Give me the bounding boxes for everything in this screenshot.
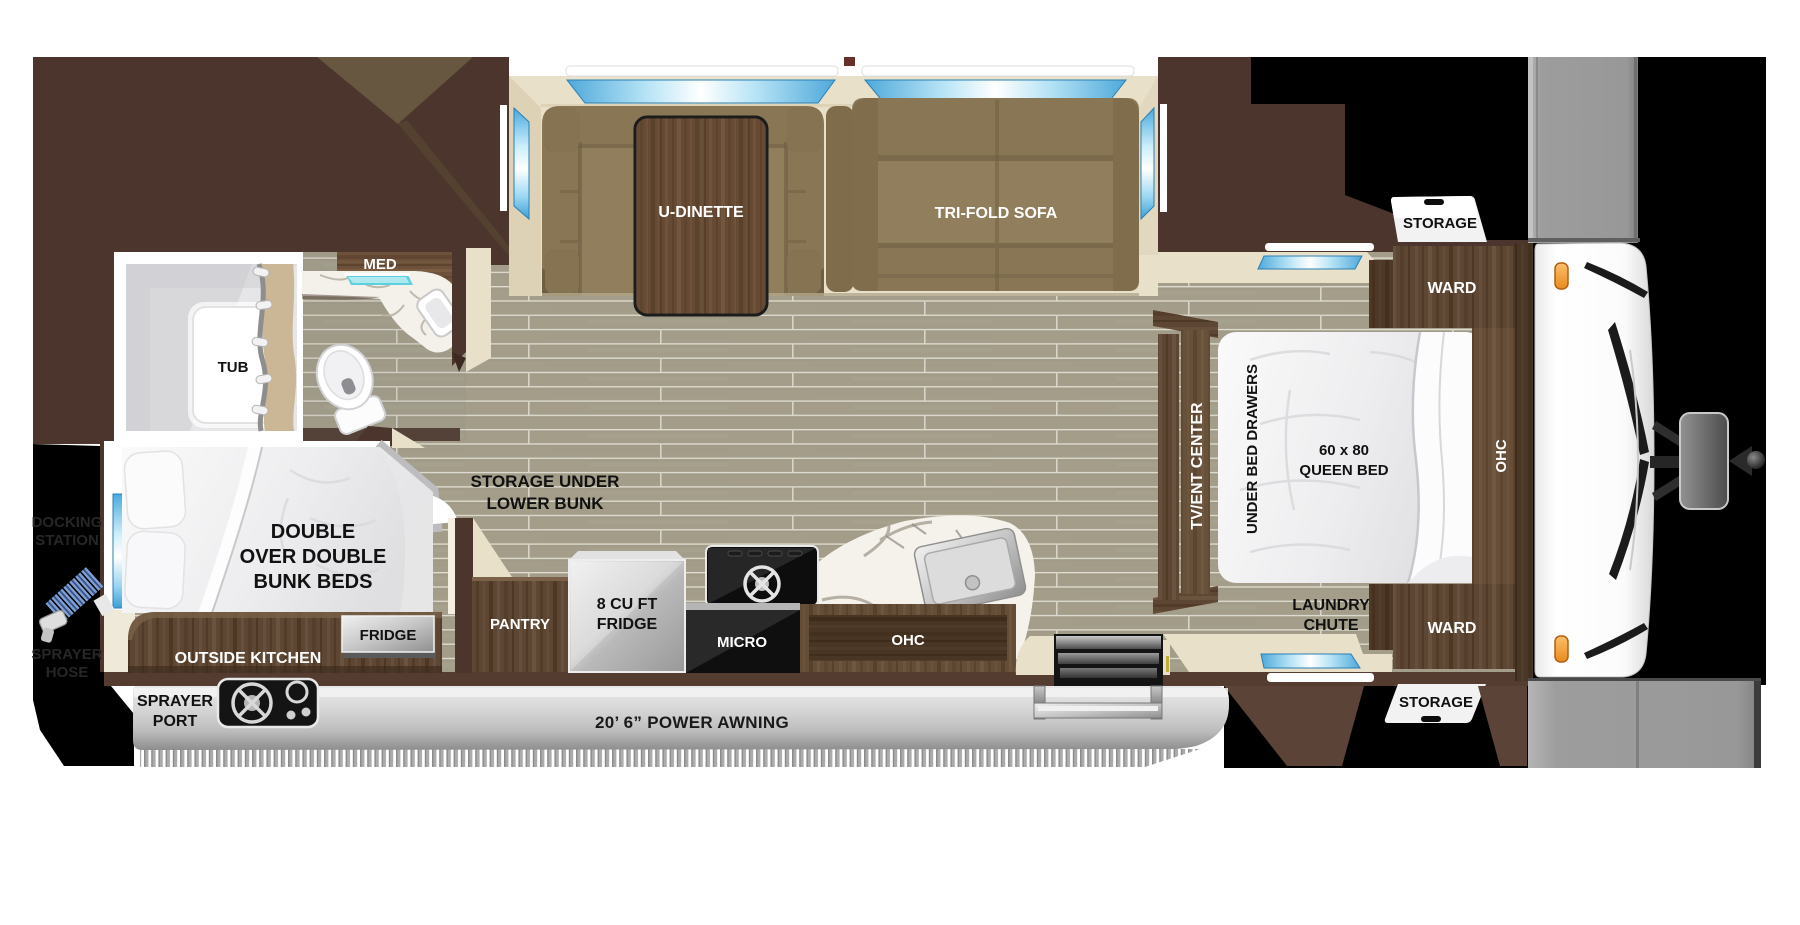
- svg-text:DOUBLE: DOUBLE: [271, 521, 355, 543]
- svg-text:PORT: PORT: [153, 713, 198, 730]
- svg-text:STORAGE UNDER: STORAGE UNDER: [471, 472, 620, 491]
- svg-text:8 CU FT: 8 CU FT: [597, 596, 658, 613]
- svg-text:OUTSIDE KITCHEN: OUTSIDE KITCHEN: [175, 650, 322, 667]
- svg-text:OVER DOUBLE: OVER DOUBLE: [240, 546, 387, 568]
- svg-text:FRIDGE: FRIDGE: [597, 616, 658, 633]
- svg-text:WARD: WARD: [1428, 280, 1477, 297]
- svg-text:OHC: OHC: [1493, 439, 1510, 473]
- svg-text:U-DINETTE: U-DINETTE: [658, 204, 744, 221]
- svg-text:LAUNDRY: LAUNDRY: [1292, 597, 1370, 614]
- svg-text:WARD: WARD: [1428, 620, 1477, 637]
- svg-text:HOSE: HOSE: [46, 664, 89, 681]
- svg-text:LOWER BUNK: LOWER BUNK: [486, 494, 604, 513]
- svg-text:MICRO: MICRO: [717, 634, 767, 651]
- svg-text:BUNK BEDS: BUNK BEDS: [254, 571, 373, 593]
- svg-text:STATION: STATION: [35, 532, 99, 549]
- svg-text:DOCKING: DOCKING: [32, 514, 103, 531]
- svg-text:20’ 6” POWER AWNING: 20’ 6” POWER AWNING: [595, 713, 789, 732]
- svg-text:SPRAYER: SPRAYER: [137, 693, 213, 710]
- svg-text:CHUTE: CHUTE: [1303, 617, 1358, 634]
- svg-text:SPRAYER: SPRAYER: [31, 646, 102, 663]
- svg-text:STORAGE: STORAGE: [1403, 215, 1477, 232]
- svg-text:PANTRY: PANTRY: [490, 616, 550, 633]
- svg-text:STORAGE: STORAGE: [1399, 694, 1473, 711]
- svg-text:OHC: OHC: [891, 632, 925, 649]
- svg-text:60 x 80: 60 x 80: [1319, 442, 1369, 459]
- svg-text:UNDER BED DRAWERS: UNDER BED DRAWERS: [1244, 364, 1261, 534]
- svg-text:MED: MED: [363, 256, 397, 273]
- svg-text:TUB: TUB: [218, 359, 249, 376]
- svg-text:FRIDGE: FRIDGE: [360, 627, 417, 644]
- svg-text:TRI-FOLD SOFA: TRI-FOLD SOFA: [935, 205, 1058, 222]
- svg-text:QUEEN BED: QUEEN BED: [1299, 462, 1388, 479]
- svg-text:TV/ENT CENTER: TV/ENT CENTER: [1189, 402, 1206, 530]
